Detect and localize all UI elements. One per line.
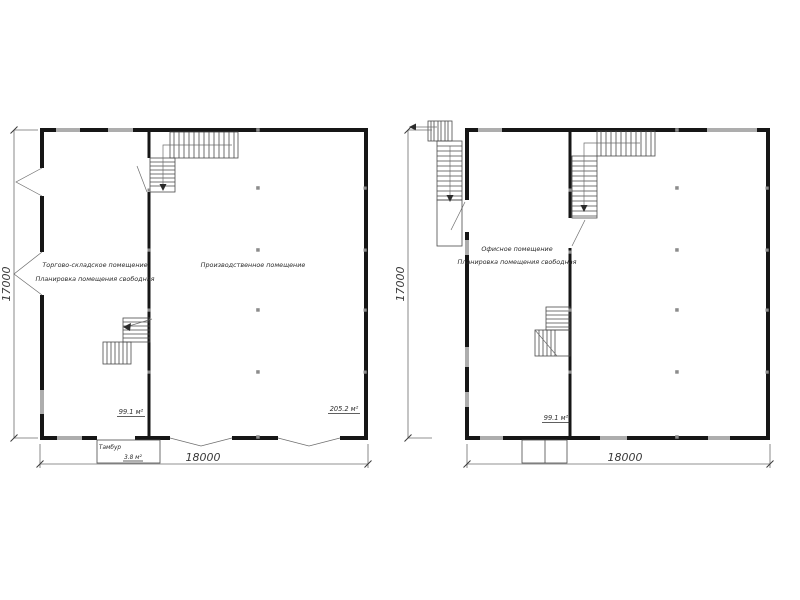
arrowhead xyxy=(409,124,416,131)
door-swing xyxy=(451,202,465,230)
column-marker xyxy=(256,308,260,312)
floor-plans-svg: Торгово-складское помещение Планировка п… xyxy=(0,0,800,600)
room-office-label-line1: Офисное помещение xyxy=(481,245,552,253)
exterior-stair-landing xyxy=(437,200,462,246)
room-trade-label-line1: Торгово-складское помещение xyxy=(42,261,147,269)
dim-height-label: 17000 xyxy=(0,267,13,302)
column-marker xyxy=(364,249,367,252)
stair-treads xyxy=(601,131,651,156)
door-swing xyxy=(572,220,585,246)
column-marker xyxy=(256,435,260,439)
column-marker xyxy=(675,186,679,190)
staircase-small-upper xyxy=(546,307,570,330)
column-marker xyxy=(675,435,679,439)
gate-opening-line xyxy=(278,438,340,446)
stair-treads xyxy=(546,311,570,327)
column-marker xyxy=(256,186,260,190)
column-marker xyxy=(675,370,679,374)
room-production-label: Производственное помещение xyxy=(201,261,306,269)
dim-height-label: 17000 xyxy=(394,267,407,302)
column-marker xyxy=(569,371,572,374)
column-marker xyxy=(256,370,260,374)
porch-outline xyxy=(522,440,567,463)
stair-treads xyxy=(431,121,448,141)
room-production-area: 205.2 м² xyxy=(330,405,359,413)
column-marker xyxy=(148,249,151,252)
column-marker xyxy=(766,309,769,312)
gate-opening-line xyxy=(16,168,42,196)
column-marker xyxy=(364,371,367,374)
column-marker xyxy=(148,189,151,192)
column-marker xyxy=(766,371,769,374)
stair-winder-line xyxy=(535,330,557,356)
column-marker xyxy=(148,309,151,312)
stair-treads xyxy=(539,330,555,356)
floor-plan-left: Торгово-складское помещение Планировка п… xyxy=(0,127,372,469)
room-trade-area: 99.1 м² xyxy=(119,408,144,416)
room-office-area: 99.1 м² xyxy=(544,414,569,422)
room-trade-label-line2: Планировка помещения свободная xyxy=(35,275,154,283)
column-marker xyxy=(675,128,679,132)
staircase-small-lower xyxy=(535,330,570,356)
stair-treads xyxy=(123,322,150,338)
dim-width-label: 18000 xyxy=(608,451,643,464)
column-marker xyxy=(569,189,572,192)
gate-opening-line xyxy=(14,252,42,295)
drawing-canvas: Торгово-складское помещение Планировка п… xyxy=(0,0,800,600)
floor-plan-right: Офисное помещение Планировка помещения с… xyxy=(394,121,774,468)
door-swing xyxy=(137,166,147,192)
room-office-label-line2: Планировка помещения свободная xyxy=(457,258,576,266)
gate-opening-line xyxy=(170,438,232,446)
stair-treads xyxy=(437,146,462,196)
column-marker xyxy=(569,309,572,312)
column-marker xyxy=(675,308,679,312)
stair-treads xyxy=(107,342,127,364)
column-marker xyxy=(766,187,769,190)
column-marker xyxy=(256,128,260,132)
column-marker xyxy=(364,187,367,190)
tambour-label: Тамбур xyxy=(99,445,121,451)
arrowhead xyxy=(160,184,167,191)
tambour-area: 3.8 м² xyxy=(124,454,142,461)
column-marker xyxy=(569,251,572,254)
column-marker xyxy=(256,248,260,252)
column-marker xyxy=(364,309,367,312)
column-marker xyxy=(148,371,151,374)
dim-width-label: 18000 xyxy=(186,451,221,464)
column-marker xyxy=(766,249,769,252)
column-marker xyxy=(675,248,679,252)
stair-treads xyxy=(150,162,175,186)
arrowhead xyxy=(447,195,454,202)
